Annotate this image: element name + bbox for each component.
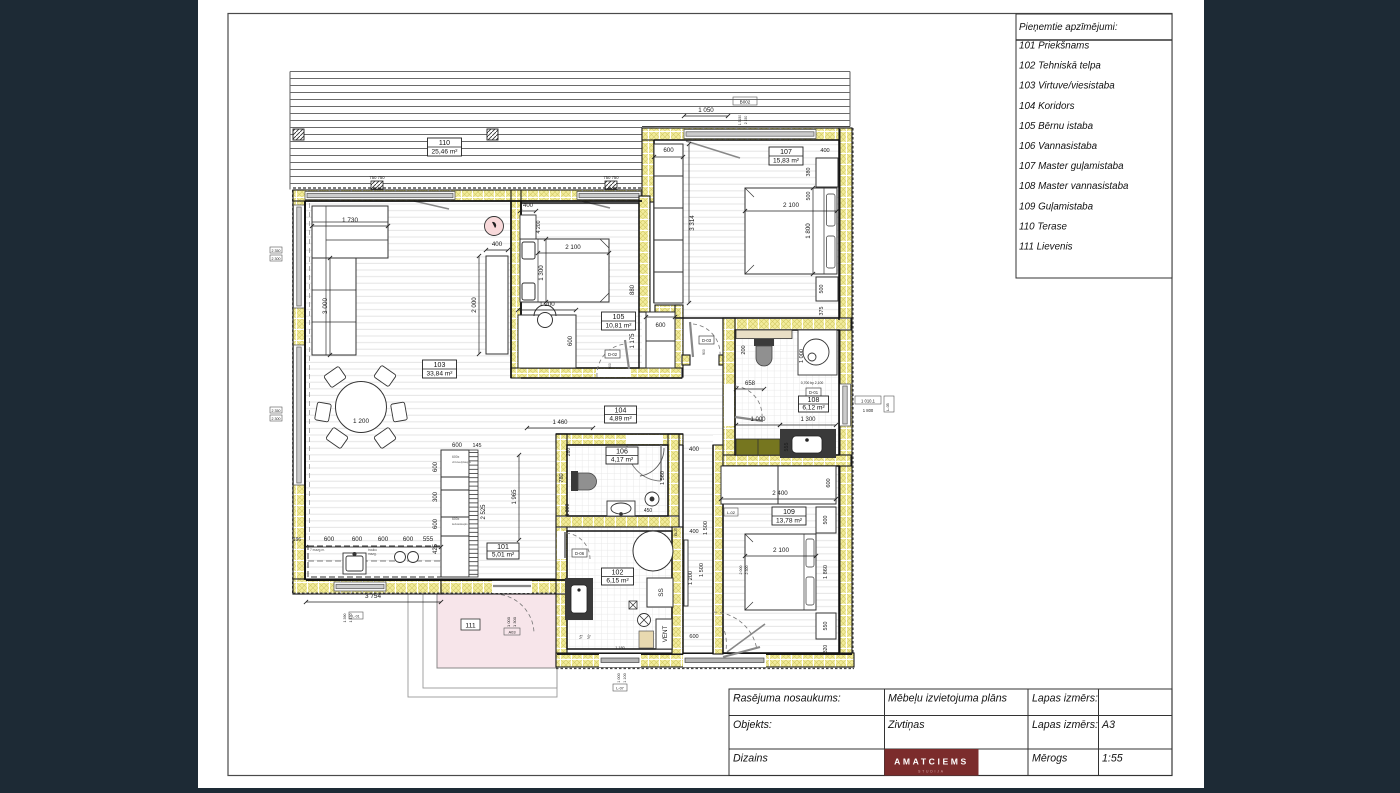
svg-text:400: 400 — [492, 241, 503, 248]
svg-text:1 730: 1 730 — [342, 217, 358, 224]
svg-text:600: 600 — [655, 323, 666, 329]
svg-text:1 300: 1 300 — [565, 504, 571, 517]
svg-text:600x: 600x — [452, 517, 460, 521]
svg-text:1 300: 1 300 — [538, 265, 545, 281]
svg-text:4 200: 4 200 — [536, 220, 542, 233]
svg-text:3 314: 3 314 — [689, 215, 696, 231]
svg-text:108: 108 — [808, 397, 820, 404]
svg-text:600: 600 — [433, 461, 439, 472]
svg-text:3 754: 3 754 — [365, 593, 381, 600]
svg-text:750 750: 750 750 — [369, 175, 385, 180]
svg-text:101 Priekšnams: 101 Priekšnams — [1019, 41, 1089, 52]
svg-text:658: 658 — [745, 381, 756, 387]
svg-text:B002: B002 — [740, 100, 751, 105]
svg-text:4,89 m²: 4,89 m² — [609, 416, 632, 423]
svg-text:2 300: 2 300 — [272, 417, 281, 421]
svg-text:105 Bērnu istaba: 105 Bērnu istaba — [1019, 121, 1094, 132]
svg-text:900: 900 — [702, 349, 706, 355]
svg-text:380: 380 — [806, 168, 812, 177]
svg-text:STUDIJA: STUDIJA — [918, 770, 945, 774]
svg-text:1 010,1: 1 010,1 — [861, 399, 876, 404]
svg-text:1 560: 1 560 — [660, 471, 666, 485]
svg-text:mazg.: mazg. — [368, 552, 377, 556]
svg-text:ELJT: ELJT — [674, 528, 678, 536]
svg-text:2 300: 2 300 — [745, 566, 749, 575]
svg-text:200: 200 — [741, 345, 747, 354]
svg-text:109 Guļamistaba: 109 Guļamistaba — [1019, 201, 1094, 212]
svg-text:111: 111 — [465, 623, 476, 630]
svg-text:107: 107 — [780, 149, 792, 156]
svg-text:600: 600 — [352, 536, 363, 543]
svg-text:Lapas izmērs:: Lapas izmērs: — [1032, 693, 1098, 705]
svg-text:1 800: 1 800 — [805, 223, 812, 239]
svg-text:900: 900 — [608, 363, 612, 369]
svg-text:SS: SS — [658, 588, 665, 597]
svg-text:550: 550 — [823, 622, 829, 631]
svg-text:1 000: 1 000 — [506, 616, 511, 627]
svg-text:110: 110 — [439, 140, 450, 147]
svg-text:600: 600 — [568, 335, 574, 346]
svg-text:555: 555 — [784, 443, 790, 452]
svg-text:1 200: 1 200 — [353, 418, 369, 425]
svg-text:101: 101 — [497, 544, 509, 551]
svg-text:1 050: 1 050 — [698, 107, 714, 114]
svg-text:D-02: D-02 — [608, 352, 618, 357]
svg-text:L-02: L-02 — [727, 510, 736, 515]
svg-text:4,17 m²: 4,17 m² — [611, 457, 634, 464]
svg-text:400: 400 — [820, 148, 829, 154]
svg-text:600: 600 — [378, 536, 389, 543]
svg-text:1 175: 1 175 — [630, 333, 636, 349]
svg-text:0,700 by 2,100: 0,700 by 2,100 — [801, 381, 824, 385]
svg-text:111 Lievenis: 111 Lievenis — [1019, 242, 1073, 253]
svg-text:2 350: 2 350 — [272, 249, 281, 253]
svg-text:555: 555 — [423, 536, 434, 543]
svg-text:500: 500 — [823, 516, 829, 525]
svg-text:600x: 600x — [452, 455, 460, 459]
svg-text:13,78 m²: 13,78 m² — [776, 518, 803, 525]
svg-text:300: 300 — [433, 491, 439, 502]
svg-text:7 mazg.m.: 7 mazg.m. — [310, 548, 325, 552]
svg-text:260: 260 — [566, 448, 572, 457]
svg-text:1 100: 1 100 — [623, 673, 627, 683]
svg-text:Mērogs: Mērogs — [1032, 753, 1068, 765]
svg-text:1 180: 1 180 — [615, 646, 625, 650]
svg-text:1 860: 1 860 — [823, 565, 829, 579]
svg-text:ledusskapis: ledusskapis — [452, 522, 468, 526]
svg-text:10,81 m²: 10,81 m² — [605, 323, 632, 330]
svg-text:2 300: 2 300 — [272, 257, 281, 261]
svg-text:33,84 m²: 33,84 m² — [426, 371, 453, 378]
svg-text:1 460: 1 460 — [552, 420, 568, 426]
svg-text:106: 106 — [616, 449, 628, 456]
svg-text:2 000: 2 000 — [739, 566, 743, 575]
svg-text:102: 102 — [612, 570, 624, 577]
svg-text:2 000: 2 000 — [471, 297, 478, 313]
svg-text:AMATCIEMS: AMATCIEMS — [894, 757, 969, 767]
svg-text:L-07: L-07 — [616, 687, 624, 691]
svg-text:2 400: 2 400 — [772, 490, 788, 497]
svg-text:750 750: 750 750 — [603, 175, 619, 180]
svg-text:2 100: 2 100 — [773, 547, 789, 554]
svg-text:196: 196 — [293, 537, 302, 543]
svg-text:1 3150: 1 3150 — [738, 115, 742, 125]
svg-text:Rasējuma nosaukums:: Rasējuma nosaukums: — [733, 693, 841, 705]
svg-text:145: 145 — [473, 443, 482, 449]
svg-text:107 Master guļamistaba: 107 Master guļamistaba — [1019, 161, 1124, 172]
svg-text:D-01: D-01 — [809, 390, 819, 395]
svg-text:2 525: 2 525 — [481, 504, 487, 520]
svg-text:1 500: 1 500 — [703, 521, 709, 535]
svg-text:109: 109 — [783, 509, 795, 516]
svg-text:400: 400 — [689, 447, 700, 453]
svg-text:6,15 m²: 6,15 m² — [606, 578, 629, 585]
svg-text:110 Terase: 110 Terase — [1019, 221, 1067, 232]
svg-text:1 300: 1 300 — [512, 616, 517, 627]
svg-text:2 100: 2 100 — [783, 202, 799, 209]
svg-text:1:55: 1:55 — [1102, 753, 1123, 765]
svg-text:Dizains: Dizains — [733, 753, 768, 765]
svg-text:450: 450 — [644, 508, 653, 514]
svg-text:Zivtiņas: Zivtiņas — [887, 719, 925, 731]
svg-text:D-03: D-03 — [702, 338, 712, 343]
svg-text:VENT: VENT — [662, 626, 669, 643]
svg-text:106 Vannasistaba: 106 Vannasistaba — [1019, 141, 1098, 152]
svg-text:1 000: 1 000 — [799, 349, 805, 363]
svg-text:320: 320 — [823, 645, 829, 654]
svg-text:Lapas izmērs:: Lapas izmērs: — [1032, 719, 1098, 731]
svg-text:1 200: 1 200 — [688, 571, 694, 585]
svg-text:600: 600 — [663, 147, 674, 154]
svg-text:600: 600 — [826, 478, 832, 487]
svg-text:600: 600 — [452, 443, 463, 449]
svg-text:L-01: L-01 — [352, 615, 359, 619]
svg-text:425: 425 — [433, 543, 439, 554]
svg-text:102 Tehniskā telpa: 102 Tehniskā telpa — [1019, 61, 1101, 72]
svg-text:15,83 m²: 15,83 m² — [773, 158, 800, 165]
svg-text:2 350: 2 350 — [272, 409, 281, 413]
svg-text:104: 104 — [615, 408, 627, 415]
svg-text:1 500: 1 500 — [699, 563, 705, 577]
svg-text:Objekts:: Objekts: — [733, 719, 772, 731]
svg-text:virtuve/plaupa: virtuve/plaupa — [452, 460, 471, 464]
svg-text:500: 500 — [819, 285, 825, 294]
svg-text:104 Koridors: 104 Koridors — [1019, 101, 1075, 112]
svg-text:D-06: D-06 — [575, 551, 585, 556]
svg-text:780: 780 — [559, 473, 565, 482]
svg-text:103: 103 — [434, 362, 446, 369]
svg-text:103 Virtuve/viesistaba: 103 Virtuve/viesistaba — [1019, 81, 1115, 92]
svg-text:105: 105 — [613, 314, 625, 321]
svg-text:1 390: 1 390 — [343, 614, 347, 623]
svg-text:1 000: 1 000 — [617, 673, 621, 683]
svg-text:Mēbeļu izvietojuma plāns: Mēbeļu izvietojuma plāns — [888, 693, 1008, 705]
svg-text:2 150: 2 150 — [744, 116, 748, 125]
svg-text:600: 600 — [324, 536, 335, 543]
svg-text:1 965: 1 965 — [512, 489, 518, 505]
svg-text:375: 375 — [819, 307, 825, 316]
svg-text:L-05: L-05 — [886, 403, 890, 411]
svg-text:600: 600 — [403, 536, 414, 543]
svg-text:Pieņemtie apzīmējumi:: Pieņemtie apzīmējumi: — [1019, 22, 1118, 33]
svg-text:2 100: 2 100 — [565, 244, 581, 251]
svg-text:1 000: 1 000 — [750, 417, 766, 423]
svg-text:400: 400 — [689, 529, 698, 535]
svg-text:6,12 m²: 6,12 m² — [802, 405, 825, 412]
svg-text:880: 880 — [630, 284, 636, 295]
svg-text:A3: A3 — [1101, 719, 1115, 731]
svg-text:600: 600 — [689, 634, 698, 640]
svg-text:600: 600 — [433, 518, 439, 529]
svg-text:108 Master vannasistaba: 108 Master vannasistaba — [1019, 181, 1129, 192]
svg-text:3 000: 3 000 — [322, 298, 329, 314]
svg-text:5,01 m²: 5,01 m² — [492, 552, 515, 559]
svg-text:500: 500 — [806, 192, 812, 201]
svg-text:400: 400 — [523, 203, 534, 209]
svg-text:25,46 m²: 25,46 m² — [431, 149, 458, 156]
svg-text:1 800: 1 800 — [863, 408, 874, 413]
svg-text:1 200: 1 200 — [539, 301, 555, 308]
svg-text:1 300: 1 300 — [800, 417, 816, 423]
svg-text:A03: A03 — [508, 630, 516, 635]
